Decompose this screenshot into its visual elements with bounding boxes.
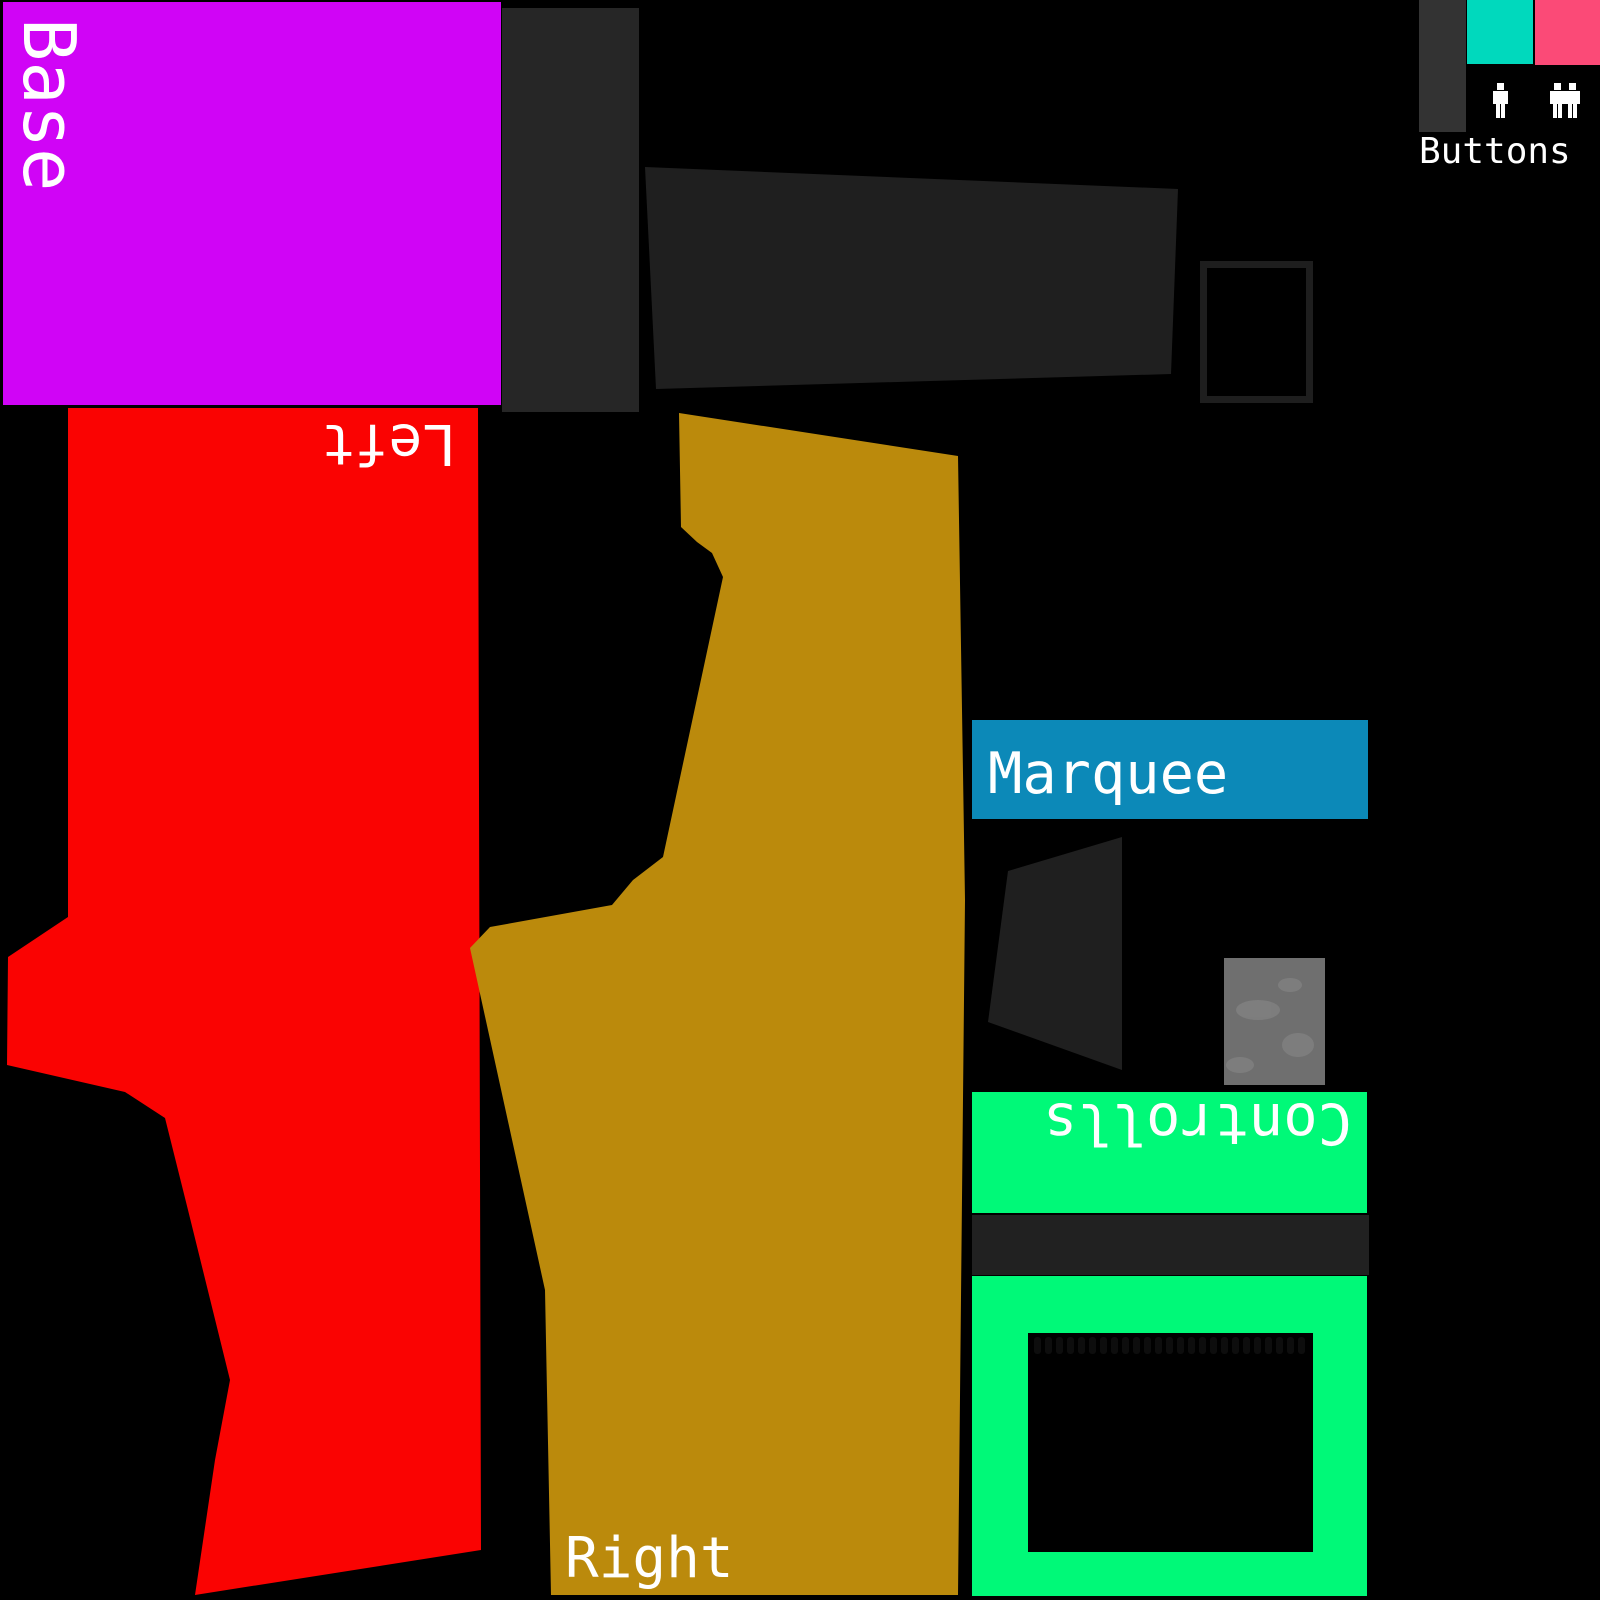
left-label: Left	[321, 411, 456, 476]
right-label: Right	[565, 1526, 734, 1591]
uv-texture-canvas: Base Buttons Left Right Ma	[0, 0, 1600, 1600]
frame-inner	[1207, 268, 1306, 396]
marquee-label: Marquee	[988, 741, 1228, 807]
panel-inset	[1028, 1333, 1313, 1552]
buttons-swatch-teal	[1467, 0, 1533, 64]
texture-swatch	[1224, 958, 1325, 1085]
buttons-label: Buttons	[1419, 131, 1571, 172]
divider-strip	[972, 1215, 1369, 1275]
dark-panel-rect	[502, 8, 639, 412]
buttons-swatch-dark	[1419, 0, 1466, 132]
dark-quad-top	[645, 167, 1178, 389]
controlls-label: Controlls	[1043, 1090, 1352, 1156]
buttons-swatch-pink	[1535, 0, 1600, 65]
base-label: Base	[7, 18, 91, 191]
